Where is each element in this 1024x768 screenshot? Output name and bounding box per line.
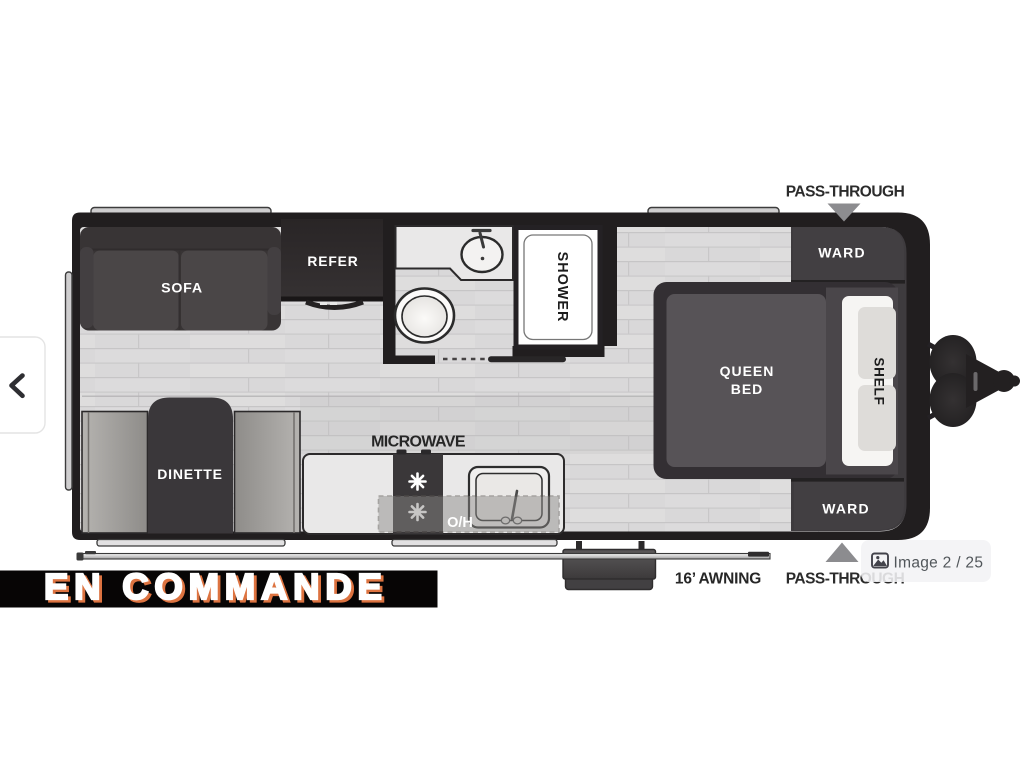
- svg-text:EN COMMANDE: EN COMMANDE: [44, 566, 388, 607]
- svg-text:BED: BED: [731, 381, 764, 397]
- svg-text:SOFA: SOFA: [161, 281, 203, 297]
- svg-text:SHOWER: SHOWER: [554, 252, 570, 323]
- svg-text:REFER: REFER: [307, 254, 358, 269]
- svg-text:Image 2 / 25: Image 2 / 25: [894, 555, 984, 572]
- svg-text:PASS-THROUGH: PASS-THROUGH: [786, 184, 905, 201]
- svg-text:WARD: WARD: [822, 501, 870, 517]
- svg-text:16’ AWNING: 16’ AWNING: [675, 571, 761, 588]
- svg-text:WARD: WARD: [818, 245, 866, 261]
- svg-text:SHELF: SHELF: [872, 357, 887, 405]
- svg-text:O/H: O/H: [447, 515, 473, 531]
- svg-text:MICROWAVE: MICROWAVE: [371, 434, 466, 451]
- svg-text:DINETTE: DINETTE: [157, 466, 223, 482]
- svg-text:QUEEN: QUEEN: [720, 363, 775, 379]
